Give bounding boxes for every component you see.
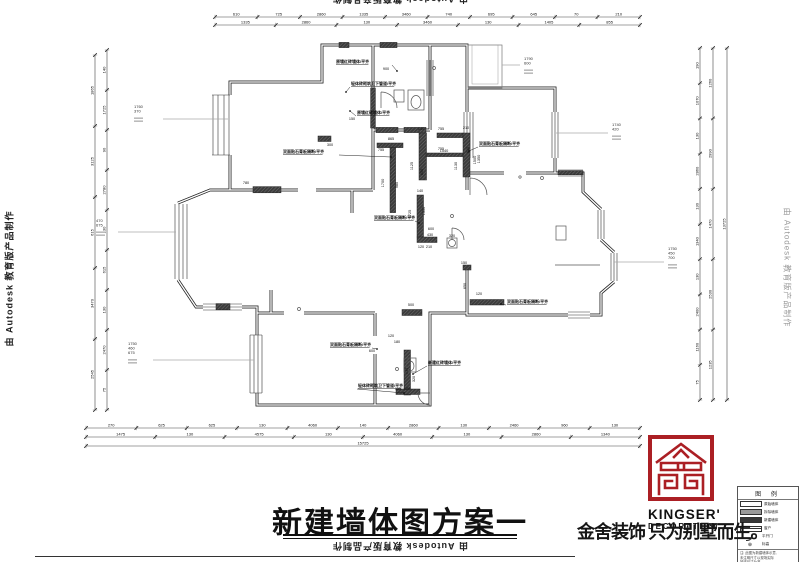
svg-text:130: 130 bbox=[102, 306, 107, 313]
svg-text:1350: 1350 bbox=[422, 207, 426, 215]
svg-text:600: 600 bbox=[369, 349, 375, 353]
legend-note: 注: 此图为新建墙体示意, 未注明尺寸以现场实际 放线尺寸为准。 bbox=[738, 549, 798, 562]
svg-text:1335: 1335 bbox=[359, 12, 369, 17]
svg-text:2530: 2530 bbox=[708, 289, 713, 299]
title-underline bbox=[283, 534, 517, 536]
svg-text:120: 120 bbox=[476, 292, 482, 296]
svg-text:双面贴石膏板隔断/平齐: 双面贴石膏板隔断/平齐 bbox=[330, 341, 371, 347]
svg-text:600: 600 bbox=[524, 61, 531, 66]
svg-text:2780: 2780 bbox=[102, 185, 107, 195]
svg-text:2400: 2400 bbox=[695, 307, 700, 317]
svg-text:2545: 2545 bbox=[90, 369, 95, 379]
svg-text:625: 625 bbox=[209, 423, 216, 428]
demolish-wall-symbol bbox=[740, 509, 762, 515]
svg-text:675: 675 bbox=[96, 223, 103, 228]
floor-plan-sheet: 由 Autodesk 教育版产品制作 由 Autodesk 教育版产品制作 由 … bbox=[0, 0, 800, 562]
svg-text:120: 120 bbox=[404, 387, 410, 391]
svg-text:625: 625 bbox=[158, 423, 165, 428]
svg-text:1340: 1340 bbox=[601, 432, 611, 437]
svg-text:1350: 1350 bbox=[477, 155, 481, 163]
svg-text:210: 210 bbox=[463, 126, 469, 130]
svg-text:1725: 1725 bbox=[102, 105, 107, 115]
svg-text:原墙红砖墙体/平齐: 原墙红砖墙体/平齐 bbox=[335, 58, 369, 64]
svg-text:615: 615 bbox=[90, 228, 95, 235]
svg-text:1160: 1160 bbox=[695, 342, 700, 351]
svg-text:4575: 4575 bbox=[255, 432, 265, 437]
svg-text:130: 130 bbox=[695, 132, 700, 139]
svg-text:轻体砖砌筑卫下管道/平齐: 轻体砖砌筑卫下管道/平齐 bbox=[351, 80, 396, 86]
svg-text:1865: 1865 bbox=[90, 85, 95, 95]
svg-text:140: 140 bbox=[102, 66, 107, 73]
svg-text:双面贴石膏板隔断/平齐: 双面贴石膏板隔断/平齐 bbox=[507, 298, 548, 304]
svg-text:780: 780 bbox=[243, 181, 249, 185]
svg-text:1405: 1405 bbox=[544, 20, 554, 25]
svg-text:180: 180 bbox=[394, 340, 400, 344]
svg-text:270: 270 bbox=[108, 423, 115, 428]
legend-row: 拆除墙体 bbox=[738, 508, 798, 516]
svg-text:900: 900 bbox=[383, 67, 389, 71]
svg-text:430: 430 bbox=[427, 233, 433, 237]
svg-text:3460: 3460 bbox=[423, 20, 433, 25]
svg-text:2860: 2860 bbox=[409, 423, 419, 428]
svg-text:130: 130 bbox=[460, 423, 467, 428]
svg-text:1130: 1130 bbox=[454, 162, 458, 170]
svg-text:210: 210 bbox=[426, 245, 432, 249]
svg-text:980: 980 bbox=[395, 182, 399, 188]
walls bbox=[178, 45, 614, 405]
svg-text:130: 130 bbox=[611, 423, 618, 428]
svg-text:1070: 1070 bbox=[695, 96, 700, 106]
company-slogan: 金舍装饰 只为别墅而生。 bbox=[577, 518, 768, 544]
svg-text:120: 120 bbox=[418, 245, 424, 249]
svg-text:150: 150 bbox=[349, 117, 355, 121]
svg-text:1260: 1260 bbox=[708, 78, 713, 88]
svg-text:3470: 3470 bbox=[90, 298, 95, 308]
svg-text:130: 130 bbox=[695, 273, 700, 280]
legend-row: 原始墙体 bbox=[738, 500, 798, 508]
svg-text:650: 650 bbox=[463, 283, 467, 289]
svg-text:2860: 2860 bbox=[317, 12, 327, 17]
autodesk-watermark-right: 由 Autodesk 教育版产品制作 bbox=[782, 193, 793, 343]
svg-text:755: 755 bbox=[378, 148, 384, 152]
svg-text:2460: 2460 bbox=[510, 423, 520, 428]
svg-text:700: 700 bbox=[668, 255, 675, 260]
svg-text:960: 960 bbox=[561, 423, 568, 428]
legend-label: 原始墙体 bbox=[764, 502, 778, 507]
svg-text:300: 300 bbox=[327, 143, 333, 147]
legend-label: 拆除墙体 bbox=[764, 510, 778, 515]
svg-text:130: 130 bbox=[325, 432, 332, 437]
svg-text:130: 130 bbox=[259, 423, 266, 428]
svg-text:2860: 2860 bbox=[532, 432, 542, 437]
svg-text:120: 120 bbox=[388, 334, 394, 338]
svg-text:2860: 2860 bbox=[302, 20, 312, 25]
svg-text:600: 600 bbox=[428, 227, 434, 231]
svg-text:675: 675 bbox=[128, 350, 135, 355]
svg-text:双面贴石膏板隔断/平齐: 双面贴石膏板隔断/平齐 bbox=[479, 140, 520, 146]
svg-text:140: 140 bbox=[360, 423, 367, 428]
svg-text:1470: 1470 bbox=[708, 219, 713, 229]
svg-text:1235: 1235 bbox=[708, 360, 713, 370]
svg-text:2860: 2860 bbox=[695, 166, 700, 176]
svg-text:2990: 2990 bbox=[708, 148, 713, 158]
kingser-logo: KINGSER' DECORATION bbox=[648, 435, 720, 531]
svg-text:双面贴石膏板隔断/平齐: 双面贴石膏板隔断/平齐 bbox=[283, 148, 324, 154]
kingser-logo-mark bbox=[648, 435, 714, 501]
svg-text:90: 90 bbox=[102, 147, 107, 152]
svg-text:755: 755 bbox=[438, 127, 444, 131]
svg-text:3125: 3125 bbox=[90, 156, 95, 166]
svg-text:70: 70 bbox=[574, 12, 579, 17]
svg-text:15725: 15725 bbox=[357, 441, 369, 446]
svg-text:130: 130 bbox=[464, 432, 471, 437]
svg-text:原墙红砖墙体/平齐: 原墙红砖墙体/平齐 bbox=[356, 109, 390, 115]
svg-text:650: 650 bbox=[420, 169, 424, 175]
svg-text:725: 725 bbox=[275, 12, 282, 17]
svg-text:865: 865 bbox=[388, 137, 394, 141]
svg-text:420: 420 bbox=[612, 127, 619, 132]
svg-text:615: 615 bbox=[102, 266, 107, 273]
svg-text:2470: 2470 bbox=[102, 345, 107, 355]
original-wall-symbol bbox=[740, 501, 762, 507]
svg-text:13725: 13725 bbox=[722, 218, 727, 230]
svg-text:695: 695 bbox=[488, 12, 495, 17]
svg-text:1475: 1475 bbox=[116, 432, 126, 437]
svg-text:190: 190 bbox=[695, 61, 700, 68]
svg-text:130: 130 bbox=[363, 20, 370, 25]
autodesk-watermark-top: 由 Autodesk 教育版产品制作 bbox=[332, 0, 468, 6]
autodesk-watermark-left: 由 Autodesk 教育版产品制作 bbox=[3, 204, 16, 354]
svg-text:75: 75 bbox=[695, 379, 700, 384]
svg-text:320: 320 bbox=[449, 234, 455, 238]
svg-text:150: 150 bbox=[461, 261, 467, 265]
svg-text:130: 130 bbox=[187, 432, 194, 437]
svg-text:75: 75 bbox=[102, 387, 107, 392]
svg-text:210: 210 bbox=[615, 12, 622, 17]
svg-text:140: 140 bbox=[418, 127, 424, 131]
svg-text:轻体砖砌筑卫下管道/平齐: 轻体砖砌筑卫下管道/平齐 bbox=[358, 382, 403, 388]
title-underline-2 bbox=[283, 538, 517, 539]
svg-text:双面贴石膏板隔断/平齐: 双面贴石膏板隔断/平齐 bbox=[374, 214, 415, 220]
svg-text:740: 740 bbox=[445, 12, 452, 17]
svg-text:3460: 3460 bbox=[402, 12, 412, 17]
svg-text:1125: 1125 bbox=[410, 162, 414, 170]
svg-text:1335: 1335 bbox=[241, 20, 251, 25]
svg-text:140: 140 bbox=[417, 189, 423, 193]
svg-text:130: 130 bbox=[695, 202, 700, 209]
bottom-border-line bbox=[35, 556, 575, 557]
svg-text:1340: 1340 bbox=[695, 236, 700, 246]
svg-text:645: 645 bbox=[530, 12, 537, 17]
svg-text:4060: 4060 bbox=[308, 423, 318, 428]
svg-text:320: 320 bbox=[412, 376, 416, 382]
legend-header: 图 例 bbox=[738, 487, 798, 500]
svg-text:4060: 4060 bbox=[393, 432, 403, 437]
svg-text:810: 810 bbox=[466, 147, 470, 153]
svg-text:430: 430 bbox=[405, 368, 409, 374]
svg-text:500: 500 bbox=[408, 303, 414, 307]
svg-text:新建红砖墙体/平齐: 新建红砖墙体/平齐 bbox=[428, 359, 461, 365]
svg-text:610: 610 bbox=[233, 12, 240, 17]
svg-text:1700: 1700 bbox=[381, 179, 385, 187]
svg-text:855: 855 bbox=[606, 20, 613, 25]
svg-text:370: 370 bbox=[134, 109, 141, 114]
svg-text:130: 130 bbox=[485, 20, 492, 25]
svg-text:1540: 1540 bbox=[440, 149, 448, 153]
